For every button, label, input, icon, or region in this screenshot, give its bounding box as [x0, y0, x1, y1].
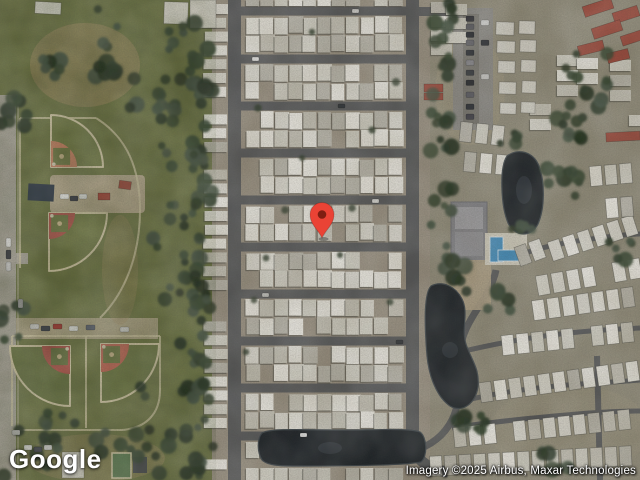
map-canvas[interactable]: Google Imagery ©2025 Airbus, Maxar Techn… — [0, 0, 640, 480]
satellite-imagery — [0, 0, 640, 480]
imagery-attribution: Imagery ©2025 Airbus, Maxar Technologies — [406, 465, 636, 477]
google-logo[interactable]: Google — [9, 444, 102, 475]
